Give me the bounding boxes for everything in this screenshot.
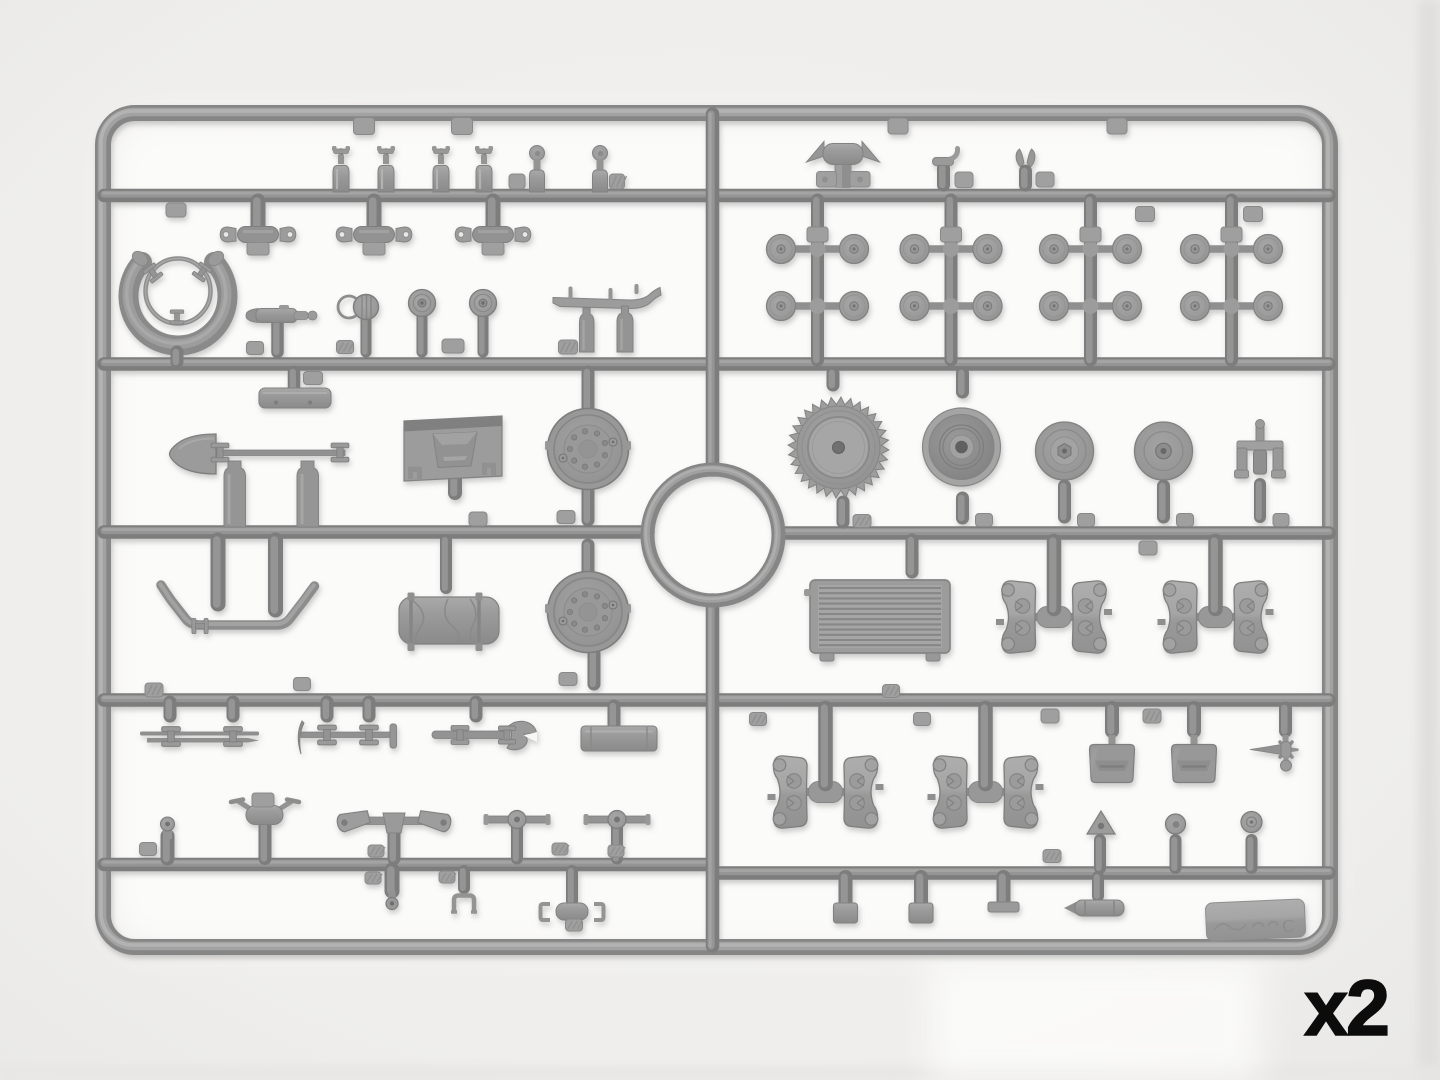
svg-text:x2: x2: [1304, 963, 1388, 1052]
svg-text:C: C: [1282, 916, 1294, 935]
